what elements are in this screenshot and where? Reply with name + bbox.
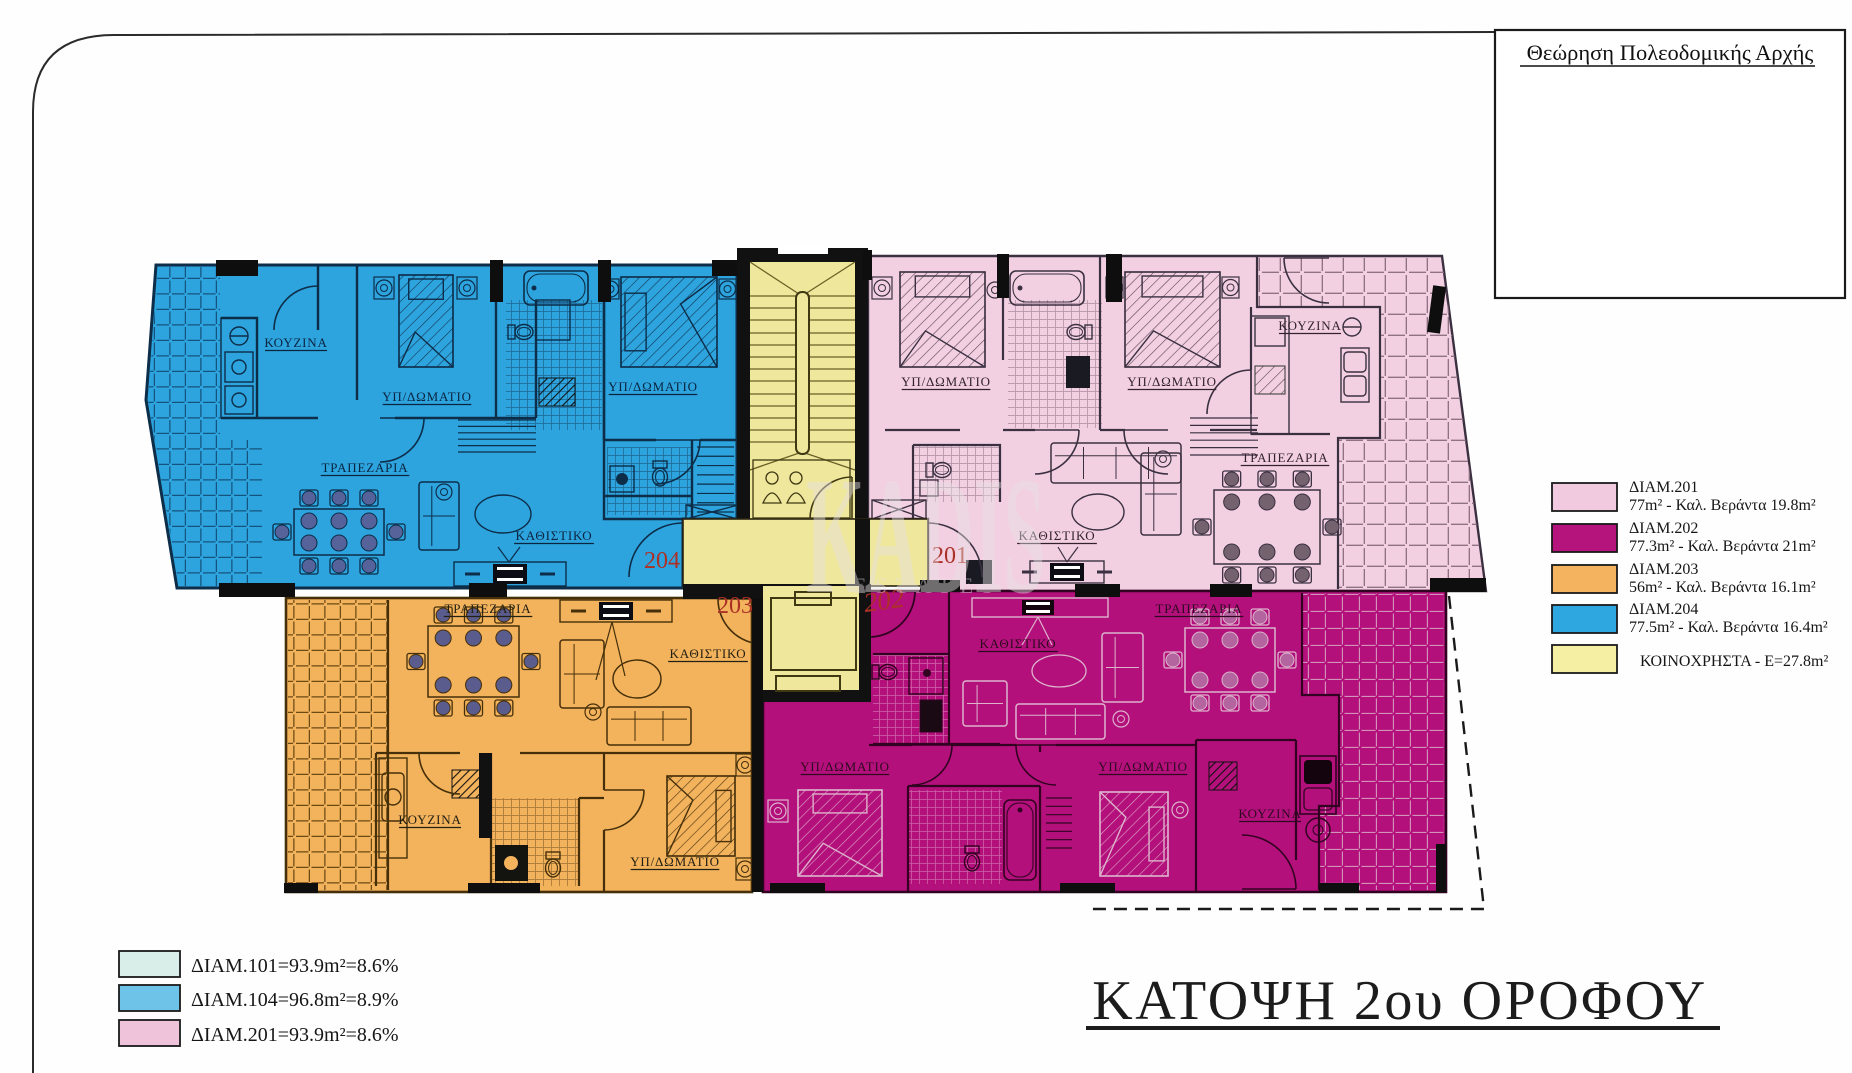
svg-text:Θεώρηση Πολεοδομικής Αρχής: Θεώρηση Πολεοδομικής Αρχής <box>1527 40 1814 65</box>
svg-text:KADIS: KADIS <box>806 444 1045 630</box>
svg-text:ΔΙΑΜ.202: ΔΙΑΜ.202 <box>1629 520 1698 537</box>
svg-text:ΤΡΑΠΕΖΑΡΙΑ: ΤΡΑΠΕΖΑΡΙΑ <box>445 601 532 616</box>
svg-text:ΔΙΑΜ.203: ΔΙΑΜ.203 <box>1629 561 1698 578</box>
svg-text:ΥΠ/ΔΩΜΑΤΙΟ: ΥΠ/ΔΩΜΑΤΙΟ <box>800 759 890 774</box>
svg-text:ΥΠ/ΔΩΜΑΤΙΟ: ΥΠ/ΔΩΜΑΤΙΟ <box>382 389 472 404</box>
svg-text:204: 204 <box>644 548 680 574</box>
svg-text:ΔΙΑΜ.204: ΔΙΑΜ.204 <box>1629 601 1698 618</box>
svg-text:ΤΡΑΠΕΖΑΡΙΑ: ΤΡΑΠΕΖΑΡΙΑ <box>322 460 409 475</box>
svg-text:ΚΟΥΖΙΝΑ: ΚΟΥΖΙΝΑ <box>398 812 461 827</box>
svg-text:ΚΟΥΖΙΝΑ: ΚΟΥΖΙΝΑ <box>1238 806 1301 821</box>
svg-text:ΚΑΘΙΣΤΙΚΟ: ΚΑΘΙΣΤΙΚΟ <box>516 528 593 543</box>
svg-text:ΥΠ/ΔΩΜΑΤΙΟ: ΥΠ/ΔΩΜΑΤΙΟ <box>1098 759 1188 774</box>
svg-text:203: 203 <box>717 593 753 619</box>
svg-text:56m² - Καλ. Βεράντα 16.1m²: 56m² - Καλ. Βεράντα 16.1m² <box>1629 579 1816 596</box>
svg-text:ΚΑΘΙΣΤΙΚΟ: ΚΑΘΙΣΤΙΚΟ <box>670 646 747 661</box>
svg-text:ΚΑΘΙΣΤΙΚΟ: ΚΑΘΙΣΤΙΚΟ <box>980 636 1057 651</box>
svg-text:ΔΙΑΜ.201: ΔΙΑΜ.201 <box>1629 479 1698 496</box>
svg-text:ESTATES: ESTATES <box>853 573 1002 598</box>
svg-text:ΤΡΑΠΕΖΑΡΙΑ: ΤΡΑΠΕΖΑΡΙΑ <box>1242 450 1329 465</box>
svg-text:77.3m² - Καλ. Βεράντα 21m²: 77.3m² - Καλ. Βεράντα 21m² <box>1629 538 1816 555</box>
svg-text:ΥΠ/ΔΩΜΑΤΙΟ: ΥΠ/ΔΩΜΑΤΙΟ <box>630 854 720 869</box>
svg-text:ΚΟΥΖΙΝΑ: ΚΟΥΖΙΝΑ <box>1278 318 1341 333</box>
svg-text:ΔΙΑΜ.201=93.9m²=8.6%: ΔΙΑΜ.201=93.9m²=8.6% <box>191 1024 399 1046</box>
svg-text:ΚΟΥΖΙΝΑ: ΚΟΥΖΙΝΑ <box>264 335 327 350</box>
svg-text:ΥΠ/ΔΩΜΑΤΙΟ: ΥΠ/ΔΩΜΑΤΙΟ <box>608 379 698 394</box>
svg-text:77m² - Καλ. Βεράντα 19.8m²: 77m² - Καλ. Βεράντα 19.8m² <box>1629 497 1816 514</box>
svg-text:ΚΑΤΟΨΗ 2ου ΟΡΟΦΟΥ: ΚΑΤΟΨΗ 2ου ΟΡΟΦΟΥ <box>1092 970 1707 1032</box>
svg-text:ΥΠ/ΔΩΜΑΤΙΟ: ΥΠ/ΔΩΜΑΤΙΟ <box>901 374 991 389</box>
svg-text:ΔΙΑΜ.104=96.8m²=8.9%: ΔΙΑΜ.104=96.8m²=8.9% <box>191 989 399 1011</box>
svg-text:ΚΟΙΝΟΧΡΗΣΤΑ - E=27.8m²: ΚΟΙΝΟΧΡΗΣΤΑ - E=27.8m² <box>1640 653 1829 670</box>
svg-text:77.5m² - Καλ. Βεράντα 16.4m²: 77.5m² - Καλ. Βεράντα 16.4m² <box>1629 619 1828 636</box>
svg-text:ΤΡΑΠΕΖΑΡΙΑ: ΤΡΑΠΕΖΑΡΙΑ <box>1156 601 1243 616</box>
svg-text:ΔΙΑΜ.101=93.9m²=8.6%: ΔΙΑΜ.101=93.9m²=8.6% <box>191 955 399 977</box>
svg-text:ΥΠ/ΔΩΜΑΤΙΟ: ΥΠ/ΔΩΜΑΤΙΟ <box>1127 374 1217 389</box>
